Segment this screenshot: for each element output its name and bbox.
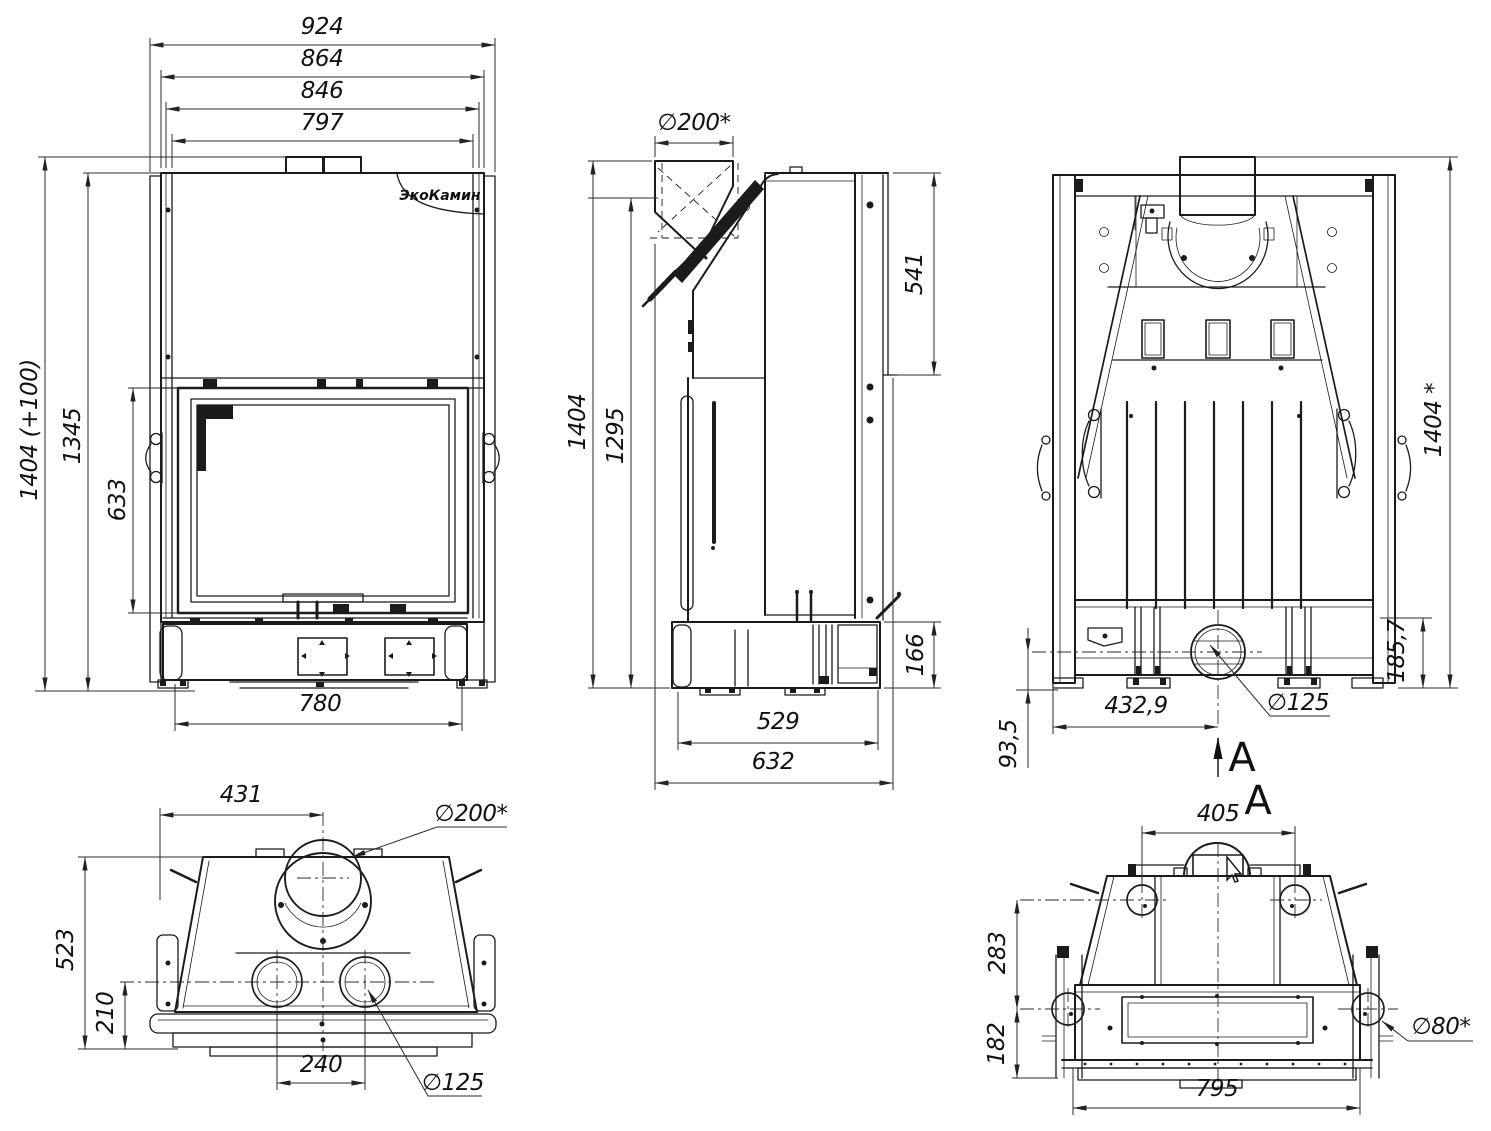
technical-drawing: ЭкоКамин	[0, 0, 1491, 1131]
section-a-view: A	[984, 778, 1473, 1115]
door-handle-right	[483, 433, 499, 483]
dim-side-rear-panel: 541	[902, 253, 928, 295]
dim-side-depth-base: 529	[757, 709, 799, 735]
dim-side-height-total: 1404	[565, 394, 591, 451]
dim-section-width-top: 405	[1197, 801, 1239, 827]
dim-section-height-lower: 182	[984, 1023, 1010, 1065]
dim-top-depth-total: 523	[53, 929, 79, 971]
dim-front-height-total: 1404 (+100)	[17, 359, 43, 500]
dim-side-flue-diameter: ∅200*	[658, 110, 731, 136]
dim-section-width-base: 795	[1196, 1076, 1238, 1102]
dim-section-hole-diameter: ∅80*	[1412, 1014, 1471, 1040]
flue-pipe-rear	[1162, 157, 1274, 289]
dim-side-base-height: 166	[903, 634, 929, 676]
drawing-canvas: ЭкоКамин	[0, 0, 1491, 1131]
dim-rear-outlet-diameter: ∅125	[1267, 690, 1329, 716]
dim-side-height-body: 1295	[603, 408, 629, 465]
dim-top-flue-diameter: ∅200*	[435, 801, 508, 827]
door-glass	[178, 388, 468, 613]
section-title: A	[1244, 778, 1272, 824]
brand-logo: ЭкоКамин	[399, 188, 481, 204]
dim-rear-base-height: 185,7	[1384, 618, 1410, 682]
dim-front-width-body: 864	[301, 46, 343, 72]
dim-front-height-body: 1345	[60, 408, 86, 465]
dim-front-height-door: 633	[105, 479, 131, 521]
dim-top-depth-rear: 210	[93, 992, 119, 1034]
dim-front-width-total: 924	[301, 14, 343, 40]
base-front	[158, 618, 487, 688]
dim-front-width-casing: 846	[301, 78, 343, 104]
dim-rear-height-total: 1404 *	[1421, 383, 1447, 457]
top-dimensions: 431 ∅200* 523 210 240 ∅125	[53, 782, 507, 1096]
dim-front-width-frame: 797	[301, 110, 344, 136]
section-arrow-label: A	[1228, 735, 1256, 781]
mouse-cursor-icon	[1227, 857, 1241, 882]
dim-top-outlet-diameter: ∅125	[422, 1070, 484, 1096]
dim-top-flue-offset: 431	[220, 782, 262, 808]
rear-view: 1404 * 185,7 93,5 432,9 ∅125 A	[996, 157, 1458, 781]
dim-rear-outlet-offset: 432,9	[1104, 693, 1167, 719]
dim-top-outlet-spacing: 240	[300, 1052, 342, 1078]
dim-front-width-base: 780	[299, 691, 341, 717]
dim-rear-outlet-floor: 93,5	[996, 719, 1022, 768]
base-side	[672, 622, 880, 695]
top-view: 431 ∅200* 523 210 240 ∅125	[53, 782, 507, 1096]
door-handle-left	[146, 433, 162, 483]
front-view: ЭкоКамин	[17, 14, 499, 731]
dim-side-depth-total: 632	[752, 749, 794, 775]
dim-section-height-upper: 283	[985, 932, 1011, 974]
side-view: ∅200* 541 1404 1295 166 529 632	[565, 110, 941, 790]
section-arrow: A	[1218, 735, 1256, 781]
